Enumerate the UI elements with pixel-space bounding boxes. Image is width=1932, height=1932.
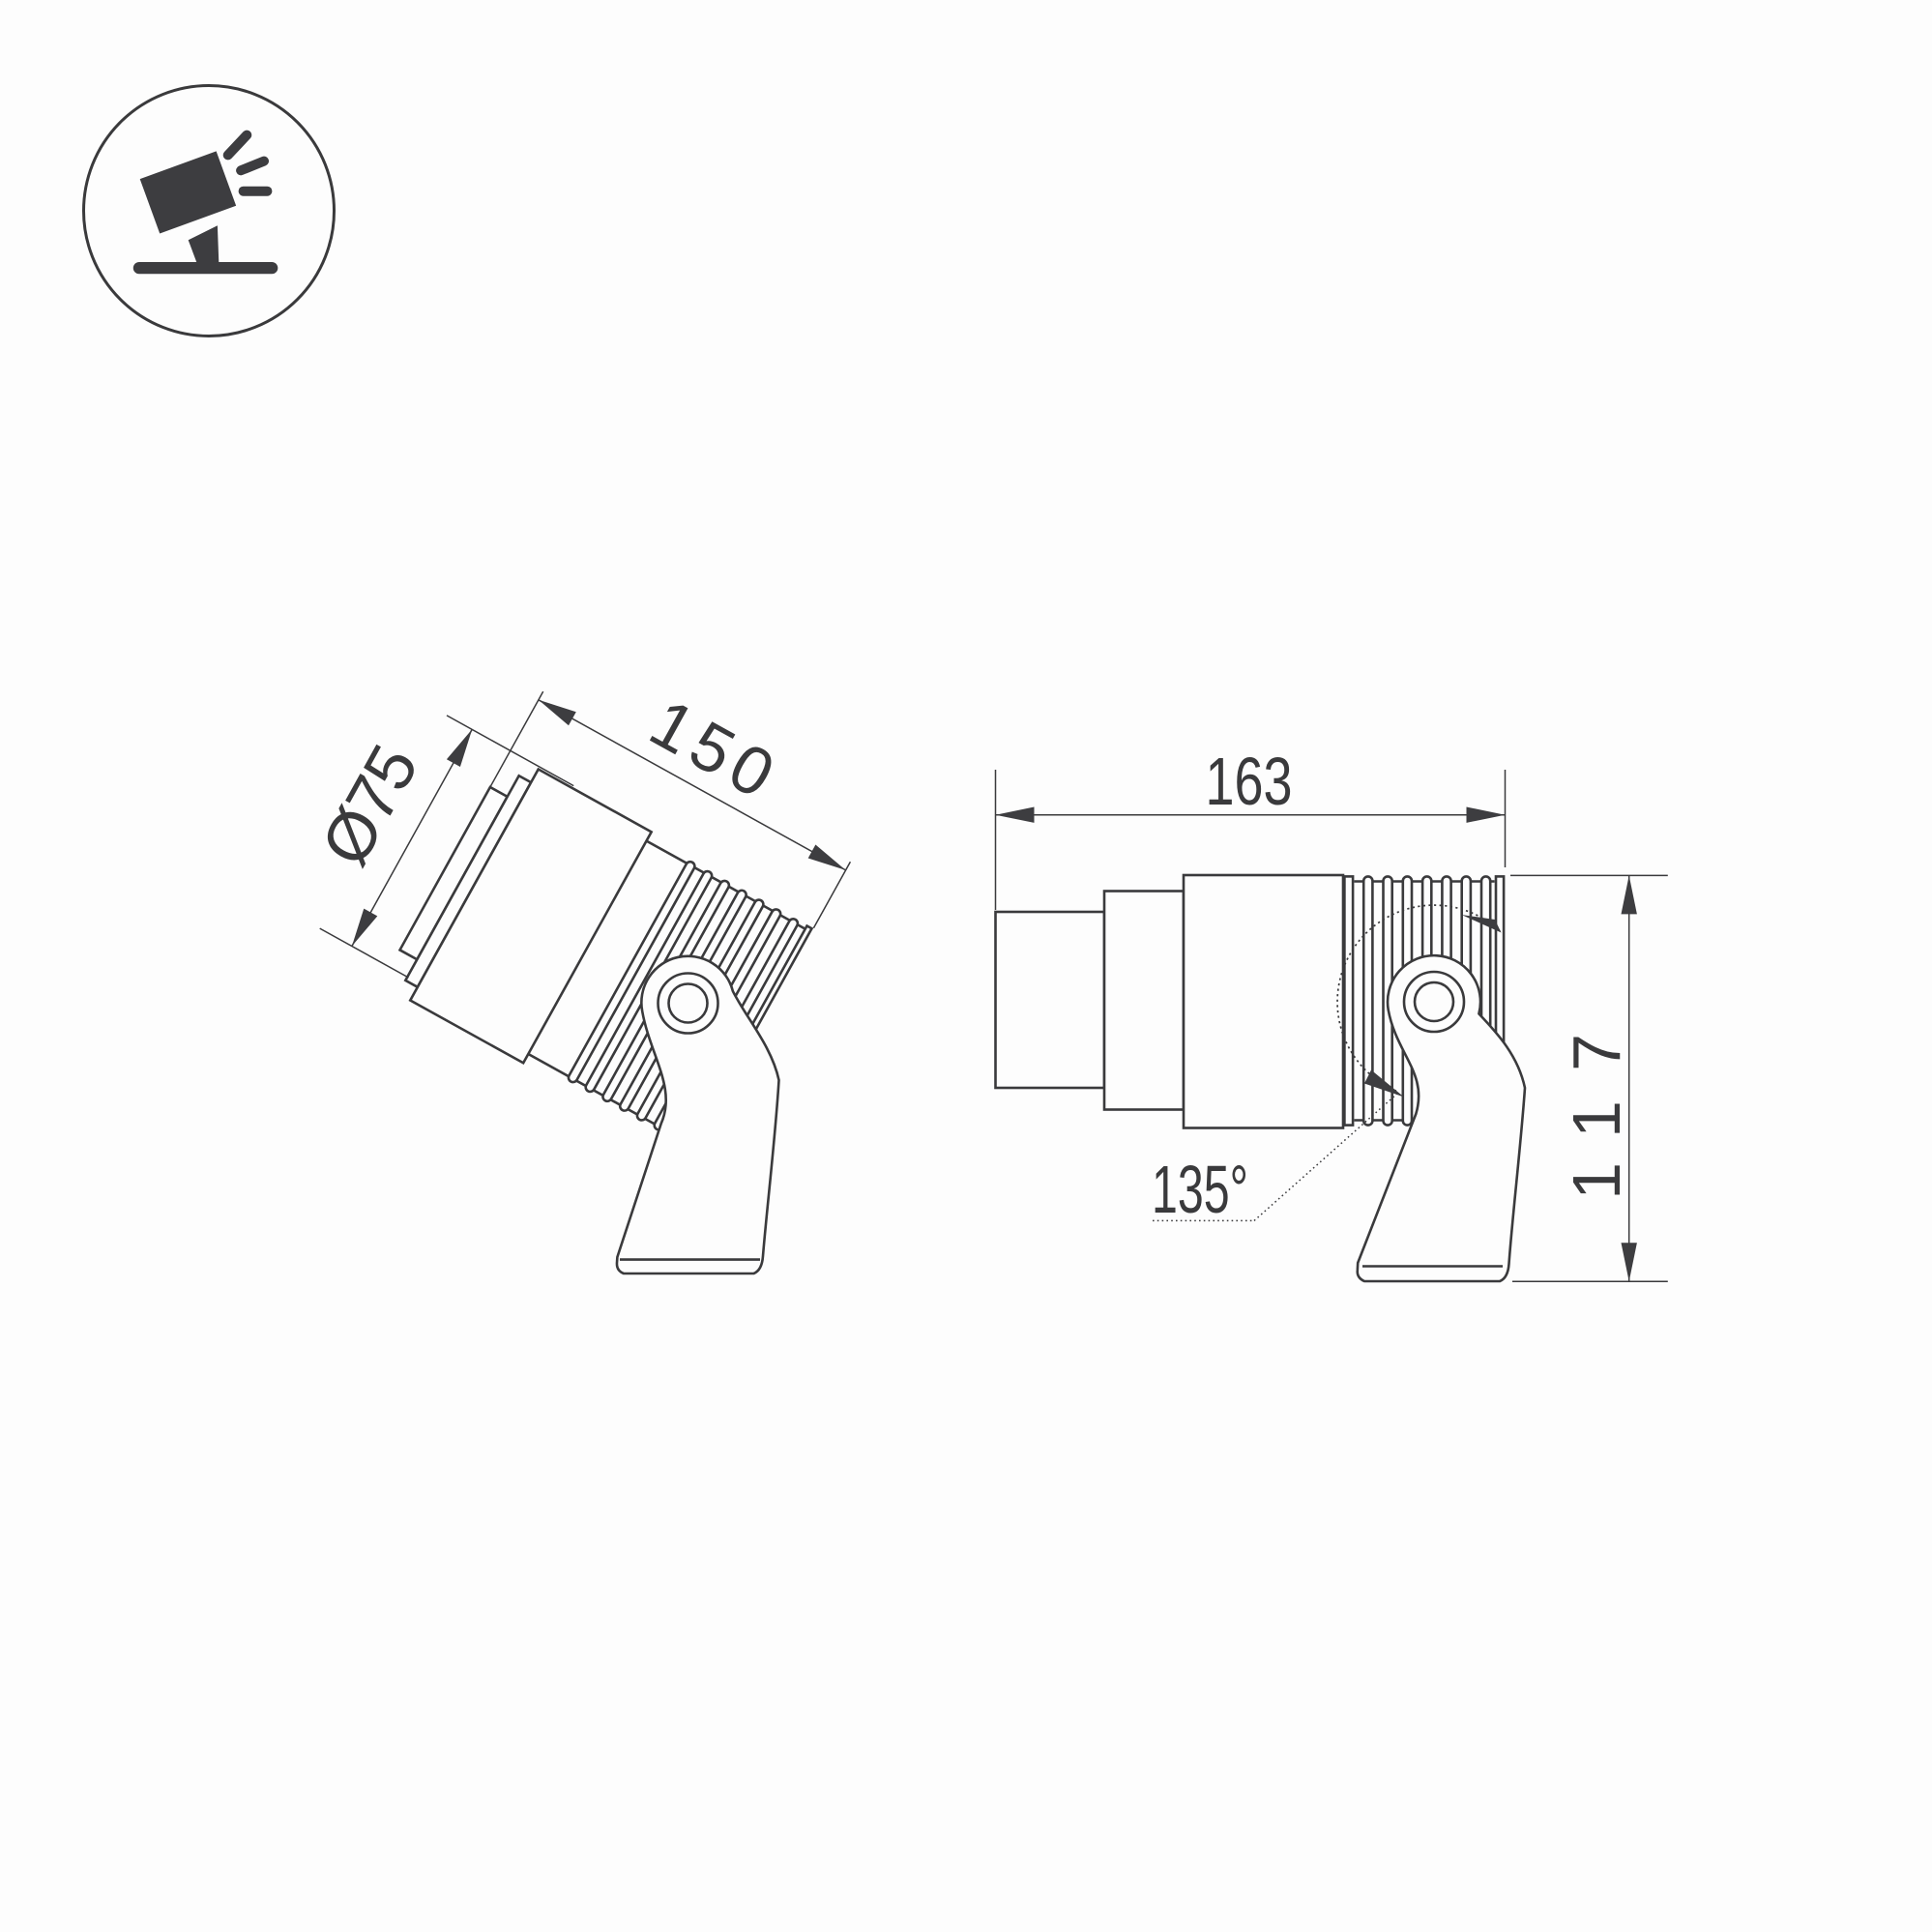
svg-text:135°: 135° — [1152, 1152, 1248, 1227]
svg-text:163: 163 — [1206, 744, 1293, 819]
svg-text:117: 117 — [1559, 1034, 1634, 1200]
